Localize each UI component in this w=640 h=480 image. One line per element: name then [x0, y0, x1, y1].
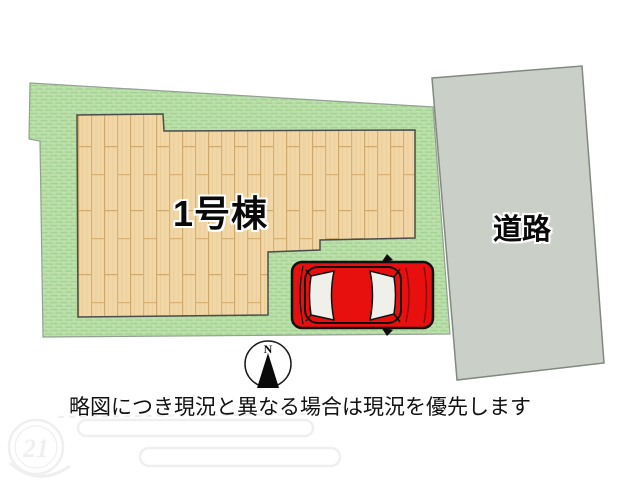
car: [292, 254, 433, 336]
car-rear-window: [310, 271, 335, 320]
road-label: 道路: [493, 206, 551, 248]
car-windshield: [370, 271, 396, 320]
north-compass: N: [245, 341, 291, 388]
watermark-number: 21: [22, 434, 49, 463]
watermark-logo: 21: [9, 414, 340, 476]
site-plan-image: N 21 1号棟 道路 略図につき現況と異なる場合は現況を優先します: [0, 0, 640, 480]
building-label: 1号棟: [173, 185, 268, 237]
disclaimer-text: 略図につき現況と異なる場合は現況を優先します: [69, 391, 531, 421]
